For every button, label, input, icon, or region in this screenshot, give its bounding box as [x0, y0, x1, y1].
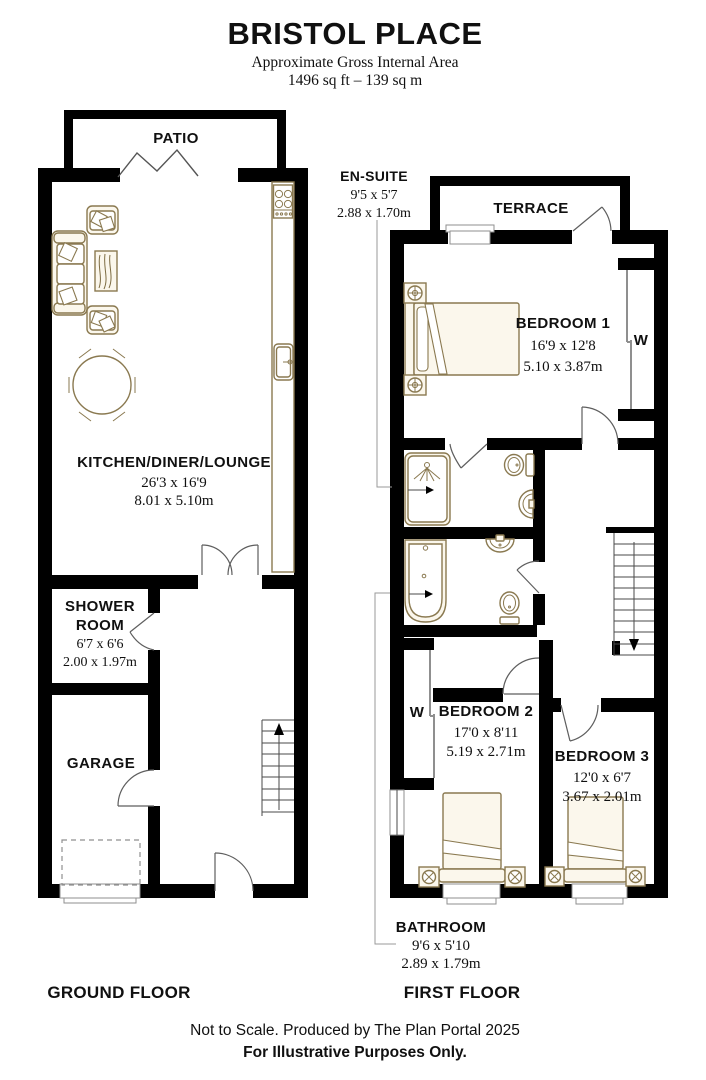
bed2-icon [419, 793, 525, 887]
doors [118, 545, 258, 891]
patio-label: PATIO [153, 130, 199, 147]
bedroom2-rear-window [443, 884, 500, 904]
room-size-m: 5.10 x 3.87m [523, 359, 603, 375]
ensuite-basin-icon [519, 490, 534, 518]
bathtub-icon [405, 540, 446, 622]
room-size-ft: 17'0 x 8'11 [454, 725, 519, 741]
room-name: ROOM [76, 617, 124, 634]
bed1-icon [404, 283, 519, 395]
room-name: BATHROOM [396, 919, 486, 936]
bedroom3-door [561, 705, 598, 741]
armchair-top [87, 206, 118, 234]
first-floor-plan: TERRACE EN-SUITE 9'5 x 5'7 2.88 x 1.70m … [337, 168, 668, 972]
ensuite-label: EN-SUITE 9'5 x 5'7 2.88 x 1.70m [337, 168, 411, 221]
wardrobe2-label: W [410, 704, 425, 721]
hob-icon [274, 185, 293, 218]
room-name: BEDROOM 1 [516, 315, 610, 332]
bedroom1-door [582, 407, 618, 444]
bedroom2-door [503, 658, 539, 694]
ensuite-door [450, 444, 487, 468]
bathroom-door [517, 561, 539, 593]
room-name: BEDROOM 2 [439, 703, 533, 720]
kitchen-double-doors [202, 545, 258, 575]
footer-disclaimer: Not to Scale. Produced by The Plan Porta… [190, 1022, 520, 1039]
header: BRISTOL PLACE Approximate Gross Internal… [227, 16, 482, 89]
area-text: 1496 sq ft – 139 sq m [288, 72, 422, 89]
patio-opening-zigzag [118, 150, 198, 177]
terrace-label: TERRACE [493, 200, 568, 217]
footer-illustrative-note: For Illustrative Purposes Only. [243, 1044, 467, 1061]
garage-bay-dashed [62, 840, 140, 885]
room-size-m: 2.00 x 1.97m [63, 655, 137, 670]
room-size-m: 2.88 x 1.70m [337, 206, 411, 221]
garage-label: GARAGE [67, 755, 135, 772]
shower-room-label: SHOWER ROOM 6'7 x 6'6 2.00 x 1.97m [63, 598, 137, 670]
stairs-down-icon [614, 533, 654, 656]
room-size-m: 3.67 x 2.01m [562, 789, 642, 805]
kitchen-sink-icon [274, 344, 293, 380]
room-size-m: 2.89 x 1.79m [401, 956, 481, 972]
tv-unit [95, 251, 117, 291]
wardrobe1-label: W [634, 332, 649, 349]
ensuite-leader-line [377, 220, 392, 487]
room-size-ft: 12'0 x 6'7 [573, 770, 631, 786]
ground-floor-title: GROUND FLOOR [47, 983, 190, 1002]
room-size-ft: 9'6 x 5'10 [412, 938, 470, 954]
room-name: BEDROOM 3 [555, 748, 649, 765]
bedroom3-rear-window [572, 884, 627, 904]
page-title: BRISTOL PLACE [227, 16, 482, 51]
bed3-icon [545, 797, 645, 886]
armchair-bottom [87, 306, 118, 334]
wardrobe1-sliding-doors [627, 270, 631, 409]
bedroom2-label: BEDROOM 2 17'0 x 8'11 5.19 x 2.71m [439, 703, 533, 760]
bedroom3-label: BEDROOM 3 12'0 x 6'7 3.67 x 2.01m [555, 748, 649, 805]
footer: Not to Scale. Produced by The Plan Porta… [190, 1022, 520, 1061]
room-size-ft: 26'3 x 16'9 [141, 475, 206, 491]
garage-inner-door [118, 770, 154, 806]
room-size-ft: 6'7 x 6'6 [76, 637, 123, 652]
first-floor-title: FIRST FLOOR [404, 983, 521, 1002]
bathroom-label: BATHROOM 9'6 x 5'10 2.89 x 1.79m [396, 919, 486, 972]
ensuite-toilet-icon [505, 454, 535, 476]
subtitle: Approximate Gross Internal Area [251, 54, 458, 71]
room-name: KITCHEN/DINER/LOUNGE [77, 454, 271, 471]
ground-floor-plan: PATIO KITCHEN/DINER/LOUNGE 26'3 x 16'9 8… [38, 110, 308, 903]
dining-table [69, 349, 135, 421]
room-name: EN-SUITE [340, 168, 408, 184]
kitchen-diner-lounge-label: KITCHEN/DINER/LOUNGE 26'3 x 16'9 8.01 x … [77, 454, 271, 509]
terrace-window [446, 225, 494, 244]
shower-icon [405, 453, 450, 525]
room-size-ft: 9'5 x 5'7 [350, 188, 397, 203]
front-door [215, 853, 253, 891]
terrace-door [573, 207, 611, 231]
sofa [52, 231, 87, 315]
stairs-up-icon [262, 720, 294, 816]
room-size-m: 8.01 x 5.10m [134, 493, 214, 509]
bathroom-toilet-icon [500, 592, 519, 624]
bedroom2-side-window [390, 790, 404, 835]
shower-room-door [130, 613, 154, 650]
bedroom1-label: BEDROOM 1 16'9 x 12'8 5.10 x 3.87m [516, 315, 610, 375]
room-size-m: 5.19 x 2.71m [446, 744, 526, 760]
wardrobe2-sliding-doors [430, 650, 434, 778]
floor-plan: BRISTOL PLACE Approximate Gross Internal… [0, 0, 706, 1080]
kitchen-counter [272, 182, 294, 572]
room-name: SHOWER [65, 598, 135, 615]
room-size-ft: 16'9 x 12'8 [530, 338, 595, 354]
garage-door [60, 884, 140, 903]
